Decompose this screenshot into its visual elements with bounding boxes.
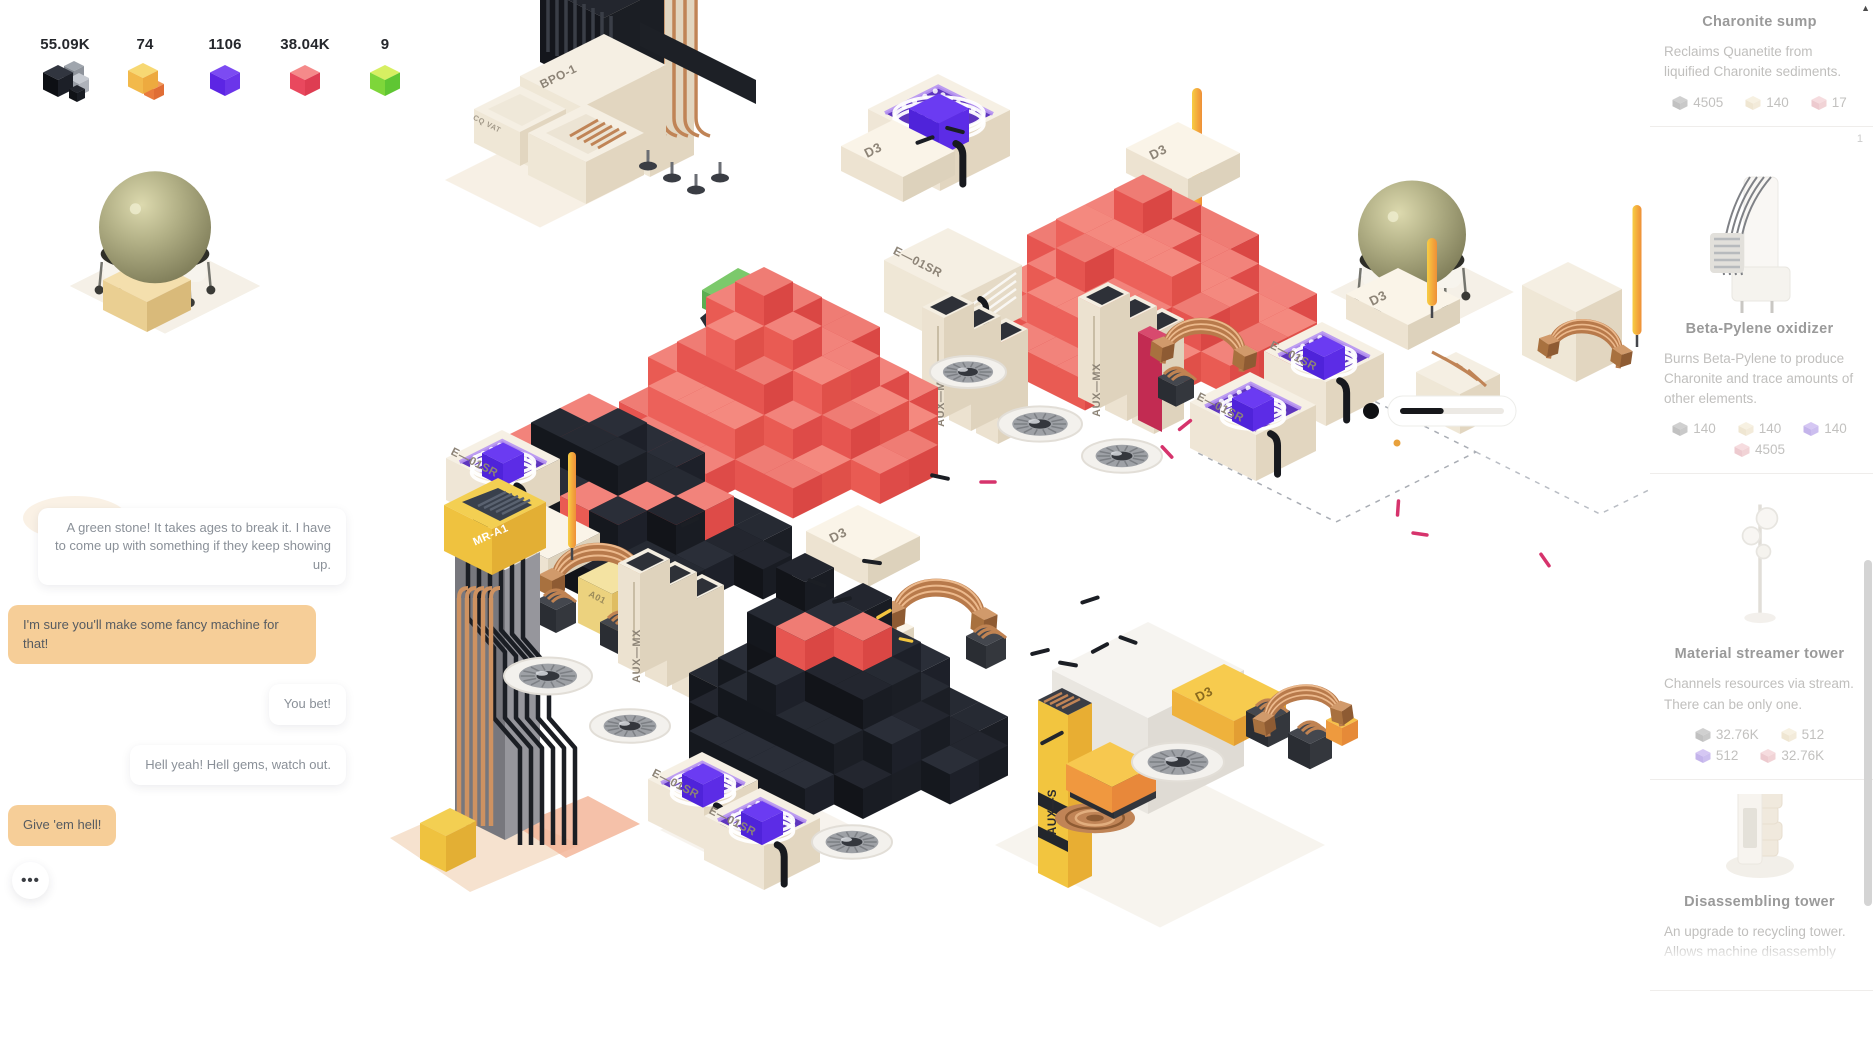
card-machine-image-disassembler xyxy=(1664,792,1855,892)
purple-cube-icon xyxy=(1803,421,1819,436)
resource-bar: 55.09K74110638.04K9 xyxy=(38,36,412,108)
card-description: Channels resources via stream. There can… xyxy=(1664,674,1855,715)
card-title: Material streamer tower xyxy=(1664,646,1855,662)
card-cost-item: 512 xyxy=(1781,727,1825,742)
card-cost-item: 32.76K xyxy=(1695,727,1759,742)
resource-counter-beta-pylene: 74 xyxy=(118,36,172,108)
heatsink-block xyxy=(966,626,1006,669)
card-cost-list: 32.76K51251232.76K xyxy=(1664,727,1855,763)
ventilation-fan[interactable] xyxy=(1132,743,1224,782)
ventilation-fan[interactable] xyxy=(504,658,592,695)
card-description: An upgrade to recycling tower. Allows ma… xyxy=(1664,922,1855,963)
gray-cube-icon xyxy=(1695,727,1711,742)
ventilation-fan[interactable] xyxy=(1082,439,1162,473)
card-title: Disassembling tower xyxy=(1664,894,1855,910)
sidebar-scrollbar[interactable] xyxy=(1864,560,1872,906)
green-cube-icon xyxy=(361,57,409,103)
build-card-disassembling-tower[interactable]: Disassembling towerAn upgrade to recycli… xyxy=(1650,780,1873,992)
card-cost-item: 4505 xyxy=(1734,442,1785,457)
machine-label-aux_mx: AUX—MX xyxy=(1091,363,1103,417)
cost-value: 512 xyxy=(1716,748,1739,763)
gray-cube-icon xyxy=(1672,95,1688,110)
cost-value: 140 xyxy=(1766,95,1789,110)
resource-value: 9 xyxy=(358,36,412,53)
cost-value: 140 xyxy=(1824,421,1847,436)
gray-cube-icon xyxy=(1672,421,1688,436)
card-title: Beta-Pylene oxidizer xyxy=(1664,321,1855,337)
resource-counter-green-gem: 9 xyxy=(358,36,412,108)
pink-cube-icon xyxy=(1734,442,1750,457)
card-cost-item: 512 xyxy=(1695,748,1739,763)
cost-value: 32.76K xyxy=(1716,727,1759,742)
black-cubes-icon xyxy=(41,57,89,103)
card-cost-item: 17 xyxy=(1811,95,1847,110)
card-cost-item: 32.76K xyxy=(1760,748,1824,763)
beige-cube-icon xyxy=(1781,727,1797,742)
cost-value: 4505 xyxy=(1755,442,1785,457)
resource-value: 38.04K xyxy=(278,36,332,53)
cost-value: 140 xyxy=(1693,421,1716,436)
ventilation-fan[interactable] xyxy=(998,406,1082,441)
ventilation-fan[interactable] xyxy=(812,825,892,859)
chat-message: You bet! xyxy=(269,684,346,724)
chat-message: Hell yeah! Hell gems, watch out. xyxy=(130,745,346,785)
signal-pole xyxy=(568,452,576,560)
card-description: Burns Beta-Pylene to produce Charonite a… xyxy=(1664,349,1855,410)
pink-cube-icon xyxy=(1811,95,1827,110)
cost-value: 32.76K xyxy=(1781,748,1824,763)
signal-pole xyxy=(1633,205,1642,347)
cost-value: 4505 xyxy=(1693,95,1723,110)
purple-cube-icon xyxy=(201,57,249,103)
yellow-cube-icon xyxy=(121,57,169,103)
observation-dome[interactable] xyxy=(70,171,260,333)
card-cost-item: 140 xyxy=(1803,421,1847,436)
scrollbar-up-icon[interactable]: ▲ xyxy=(1861,3,1870,13)
build-card-charonite-sump[interactable]: Charonite sumpReclaims Quanetite from li… xyxy=(1650,0,1873,127)
card-cost-list: 450514017 xyxy=(1664,95,1855,110)
card-machine-image-oxidizer xyxy=(1664,139,1855,319)
heatsink-block xyxy=(1288,722,1332,769)
beige-cube-icon xyxy=(1738,421,1754,436)
resource-value: 1106 xyxy=(198,36,252,53)
cost-value: 140 xyxy=(1759,421,1782,436)
resource-value: 74 xyxy=(118,36,172,53)
card-cost-item: 140 xyxy=(1738,421,1782,436)
chat-message: Give 'em hell! xyxy=(8,805,116,845)
resource-counter-charonite: 38.04K xyxy=(278,36,332,108)
machine-label-aux_mx: AUX—MX xyxy=(631,629,643,683)
progress-fill xyxy=(1400,408,1444,414)
card-machine-image-streamer xyxy=(1664,486,1855,644)
machine-label-aux_s: AUX—S xyxy=(1047,789,1059,835)
chat-message: A green stone! It takes ages to break it… xyxy=(38,508,346,585)
card-cost-item: 140 xyxy=(1745,95,1789,110)
cost-value: 512 xyxy=(1802,727,1825,742)
resource-counter-quanetite: 55.09K xyxy=(38,36,92,108)
card-title: Charonite sump xyxy=(1664,14,1855,30)
card-description: Reclaims Quanetite from liquified Charon… xyxy=(1664,42,1855,83)
ventilation-fan[interactable] xyxy=(930,356,1006,388)
chat-panel: A green stone! It takes ages to break it… xyxy=(8,500,346,899)
card-cost-item: 4505 xyxy=(1672,95,1723,110)
red-cube-icon xyxy=(281,57,329,103)
machine-progress-indicator[interactable] xyxy=(1363,396,1516,426)
card-cost-item: 140 xyxy=(1672,421,1716,436)
heatsink-block xyxy=(536,590,576,633)
build-sidebar: Charonite sumpReclaims Quanetite from li… xyxy=(1650,0,1873,1050)
ventilation-fan[interactable] xyxy=(590,709,670,743)
card-count-badge: 1 xyxy=(1857,133,1863,145)
resource-counter-violet-element: 1106 xyxy=(198,36,252,108)
resource-value: 55.09K xyxy=(38,36,92,53)
build-card-beta-pylene-oxidizer[interactable]: 1Beta-Pylene oxidizerBurns Beta-Pylene t… xyxy=(1650,127,1873,475)
cost-value: 17 xyxy=(1832,95,1847,110)
purple-cube-icon xyxy=(1695,748,1711,763)
pink-cube-icon xyxy=(1760,748,1776,763)
build-card-material-streamer-tower[interactable]: Material streamer towerChannels resource… xyxy=(1650,474,1873,780)
chat-message: I'm sure you'll make some fancy machine … xyxy=(8,605,316,664)
beige-cube-icon xyxy=(1745,95,1761,110)
card-cost-list: 1401401404505 xyxy=(1664,421,1855,457)
chat-more-button[interactable]: ••• xyxy=(12,862,49,899)
game-viewport[interactable]: BPO-1CQ VATD3D3D3E—01SRDH3AUX—MXAUX—MXE—… xyxy=(0,0,1873,1050)
